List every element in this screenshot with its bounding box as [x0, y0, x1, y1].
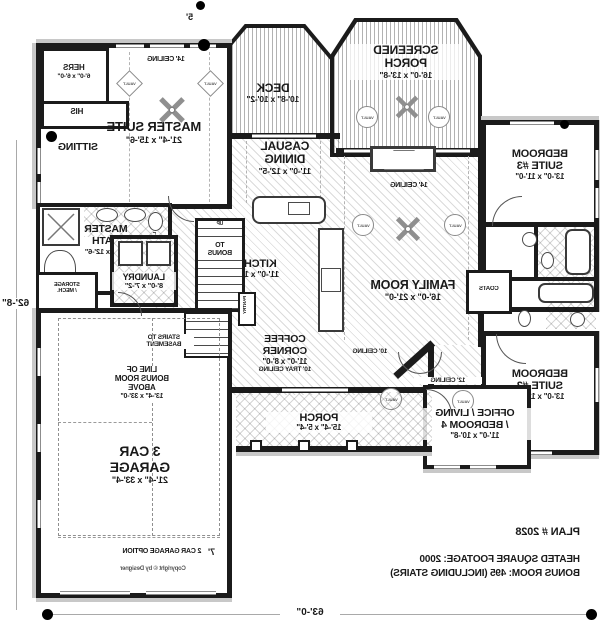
garage-door [146, 591, 216, 595]
porch-column [346, 440, 358, 452]
ceiling-fan-icon [392, 213, 424, 245]
ceiling-fan-icon [392, 92, 422, 122]
ceiling-line [344, 156, 345, 340]
vault-marker: VAULT [444, 214, 466, 236]
toilet [541, 252, 554, 269]
copyright-label: Copyright © by Designer [100, 566, 206, 573]
garage-offset-dim: 7' [206, 547, 217, 557]
to-bonus-label: TO BONUS [198, 242, 242, 258]
hers-label: HERS 6'-0" x 6'-0" [45, 64, 103, 80]
pantry-label: PANTRY [242, 296, 247, 314]
top-dim-label: 5' [184, 12, 195, 22]
porch-front-wall [236, 446, 432, 452]
porch-column [250, 440, 262, 452]
window [595, 188, 599, 218]
bedroom3-label: BEDROOM SUITE #3 13'-0" x 11'-0" [494, 148, 586, 182]
bay-divider [58, 422, 152, 423]
toilet [148, 212, 163, 231]
coats-label: COATS [468, 286, 510, 293]
master-suite-label: MASTER SUITE 21'-4" x 15'-6" [86, 120, 222, 145]
up-label: UP [210, 222, 230, 228]
dim-dot [560, 120, 569, 129]
window [595, 368, 599, 402]
floor-plan: DECK 10'-8" x 10'-2" SCREENED PORCH 16'-… [0, 0, 600, 627]
family-room-ceiling: 14' CEILING [370, 182, 448, 190]
laundry-label: LAUNDRY 8'-0" x 7'-2" [112, 272, 176, 290]
coffee-corner-label: COFFEE CORNER 11'-0" x 8'-0" 10' TRAY CE… [238, 334, 332, 374]
window [37, 424, 41, 452]
porch-column [298, 440, 310, 452]
window [150, 44, 184, 48]
tub [565, 229, 591, 275]
window [595, 150, 599, 180]
vault-marker: VAULT [352, 214, 374, 236]
his-label: HIS [52, 108, 102, 117]
window [37, 500, 41, 528]
bottom-dim-label: 63'-0" [280, 607, 340, 618]
island-sink [288, 202, 310, 215]
bonus-room-outline [58, 318, 220, 536]
window [37, 348, 41, 376]
master-ceiling-label: 14' CEILING [130, 56, 202, 64]
heated-footage: HEATED SQUARE FOOTAGE: 2000 [366, 554, 580, 565]
tub [538, 283, 594, 303]
sink [96, 208, 118, 222]
sink [570, 312, 585, 327]
dim-dot [42, 609, 53, 620]
washer [118, 241, 143, 266]
family-room-label: FAMILY ROOM 16'-0" x 21'-0" [352, 278, 474, 302]
porch-label: PORCH 15'-4" x 5'-4" [266, 412, 372, 433]
sliding-door [252, 134, 316, 138]
foyer-ceiling-label: 10' CEILING [336, 348, 404, 355]
deck-label: DECK 10'-8" x 10'-2" [226, 82, 320, 105]
dim-dot [46, 131, 57, 142]
window [510, 121, 554, 125]
screened-porch-label: SCREENED PORCH 16'-0" x 13'-8" [350, 44, 462, 80]
dryer [146, 241, 171, 266]
screened-porch-floor [334, 22, 478, 153]
left-dim-label: 62'-8" [0, 298, 31, 309]
wall-post [198, 39, 210, 51]
ceiling-fan-icon [155, 93, 189, 127]
garage-label: 3 CAR GARAGE 21'-4" x 33'-4" [78, 444, 202, 485]
sink [522, 232, 537, 247]
garage-door [60, 591, 130, 595]
bonus-outline-label: LINE OF BONUS ROOM ABOVE 13'-4" x 33'-0" [98, 366, 186, 401]
vault-marker: VAULT [428, 106, 450, 128]
pantry-closet [238, 292, 256, 326]
bay-divider [152, 318, 153, 536]
left-dim-line [16, 140, 17, 610]
bonus-room-footage: BONUS ROOM: 495 (INCLUDING STAIRS) [366, 568, 580, 579]
dim-dot [586, 609, 597, 620]
office-ceiling-label: 12' CEILING [414, 377, 482, 384]
garage-option-label: 2 CAR GARAGE OPTION [106, 548, 218, 556]
garage-option-line [58, 537, 220, 538]
window [434, 465, 460, 469]
window [470, 465, 496, 469]
dim-dot [196, 1, 205, 10]
plan-info: PLAN # 2028 HEATED SQUARE FOOTAGE: 2000 … [366, 526, 580, 579]
range [321, 268, 341, 292]
plan-number: PLAN # 2028 [366, 526, 580, 538]
toilet [518, 310, 531, 327]
vault-marker: VAULT [356, 106, 378, 128]
storage-label: STORAGE / MECH. [42, 282, 92, 294]
sink [124, 208, 146, 222]
window [116, 44, 144, 48]
casual-dining-label: CASUAL DINING 11'-0" x 12'-5" [238, 140, 332, 176]
